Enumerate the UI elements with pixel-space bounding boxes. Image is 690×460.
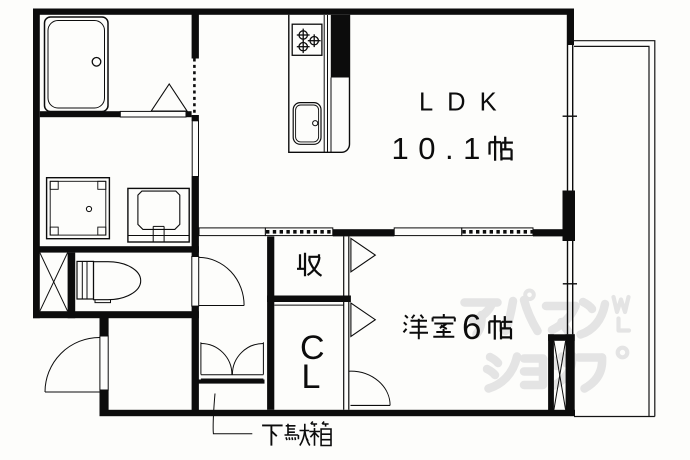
svg-text:6: 6 (462, 308, 481, 347)
svg-text:10.1: 10.1 (392, 131, 490, 166)
svg-text:L: L (302, 358, 321, 396)
svg-text:LDK: LDK (419, 89, 511, 117)
